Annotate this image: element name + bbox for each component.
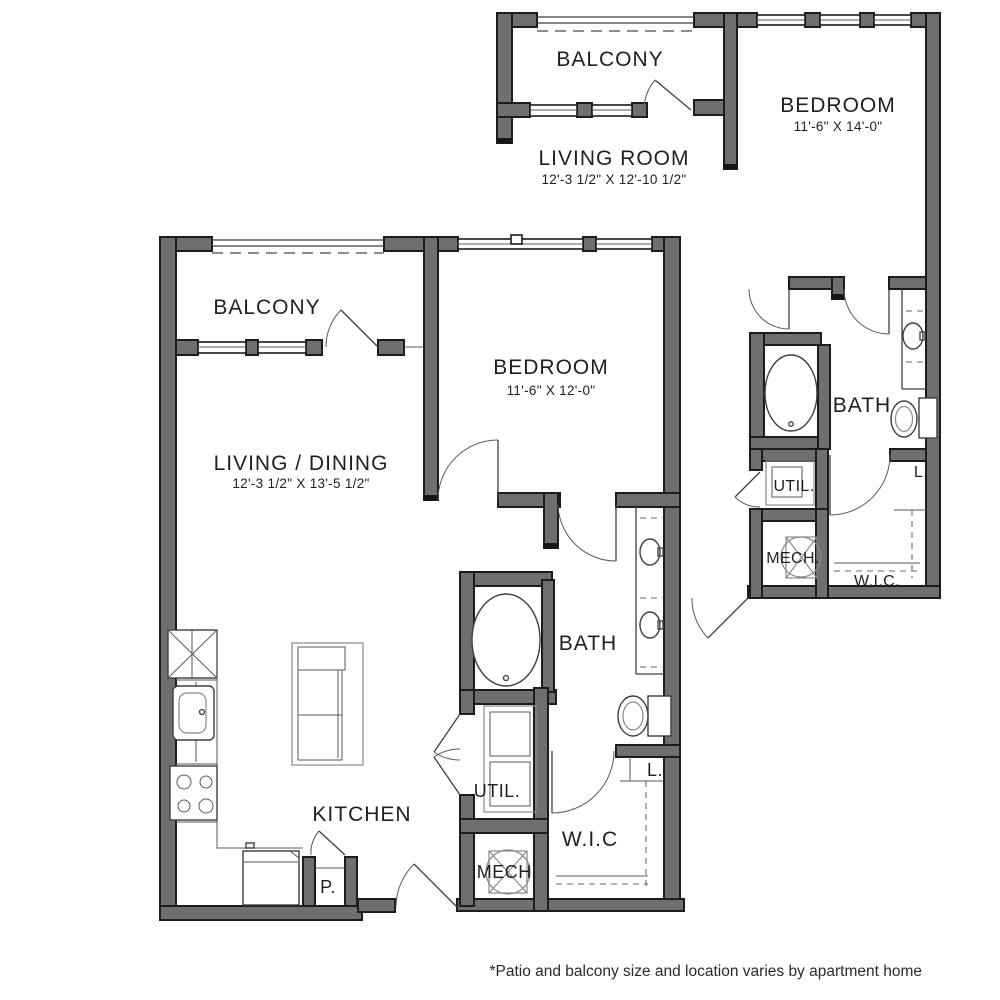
right-unit-plan: BALCONY LIVING ROOM 12'-3 1/2" X 12'-10 … xyxy=(497,13,940,638)
right-bath-label: BATH xyxy=(833,394,891,417)
dishwasher-icon xyxy=(243,843,299,905)
left-bath-label: BATH xyxy=(559,632,617,655)
right-balcony-label: BALCONY xyxy=(556,48,663,71)
right-linen-label: L. xyxy=(914,464,928,481)
fridge-icon xyxy=(168,630,217,678)
left-util-label: UTIL. xyxy=(474,781,521,801)
left-kitchen-label: KITCHEN xyxy=(312,803,411,826)
left-unit-plan: BALCONY LIVING / DINING 12'-3 1/2" X 13'… xyxy=(160,235,684,920)
right-unit-closet-lines xyxy=(834,510,926,578)
kitchen-sink-icon xyxy=(173,686,214,740)
left-balcony-label: BALCONY xyxy=(213,296,320,319)
left-pantry-label: P. xyxy=(320,877,336,897)
kitchen-island-icon xyxy=(292,643,363,765)
left-unit-kitchen-fixtures xyxy=(168,630,363,905)
right-mech-label: MECH. xyxy=(766,550,820,567)
right-bedroom-dims: 11'-6" X 14'-0" xyxy=(794,119,883,134)
left-living-dims: 12'-3 1/2" X 13'-5 1/2" xyxy=(232,476,369,491)
left-bedroom-dims: 11'-6" X 12'-0" xyxy=(507,383,596,398)
vanity-icon xyxy=(902,289,926,389)
left-linen-label: L. xyxy=(647,760,663,780)
right-living-dims: 12'-3 1/2" X 12'-10 1/2" xyxy=(541,172,686,187)
right-wic-label: W.I.C. xyxy=(854,573,900,590)
left-wic-label: W.I.C xyxy=(562,828,618,851)
right-bedroom-label: BEDROOM xyxy=(780,94,896,117)
footnote: *Patio and balcony size and location var… xyxy=(489,963,922,980)
left-living-label: LIVING / DINING xyxy=(214,452,389,475)
toilet-icon xyxy=(618,696,671,736)
bathtub-icon xyxy=(765,355,817,431)
left-mech-label: MECH. xyxy=(477,862,538,882)
floor-plan-canvas: BALCONY LIVING / DINING 12'-3 1/2" X 13'… xyxy=(0,0,1000,1000)
left-unit-walls xyxy=(160,237,684,920)
toilet-icon xyxy=(891,398,937,438)
stove-icon xyxy=(170,766,217,820)
right-living-label: LIVING ROOM xyxy=(538,147,689,170)
bathtub-icon xyxy=(472,594,540,686)
double-vanity-icon xyxy=(636,505,664,674)
right-util-label: UTIL. xyxy=(773,478,814,495)
left-bedroom-label: BEDROOM xyxy=(493,356,609,379)
